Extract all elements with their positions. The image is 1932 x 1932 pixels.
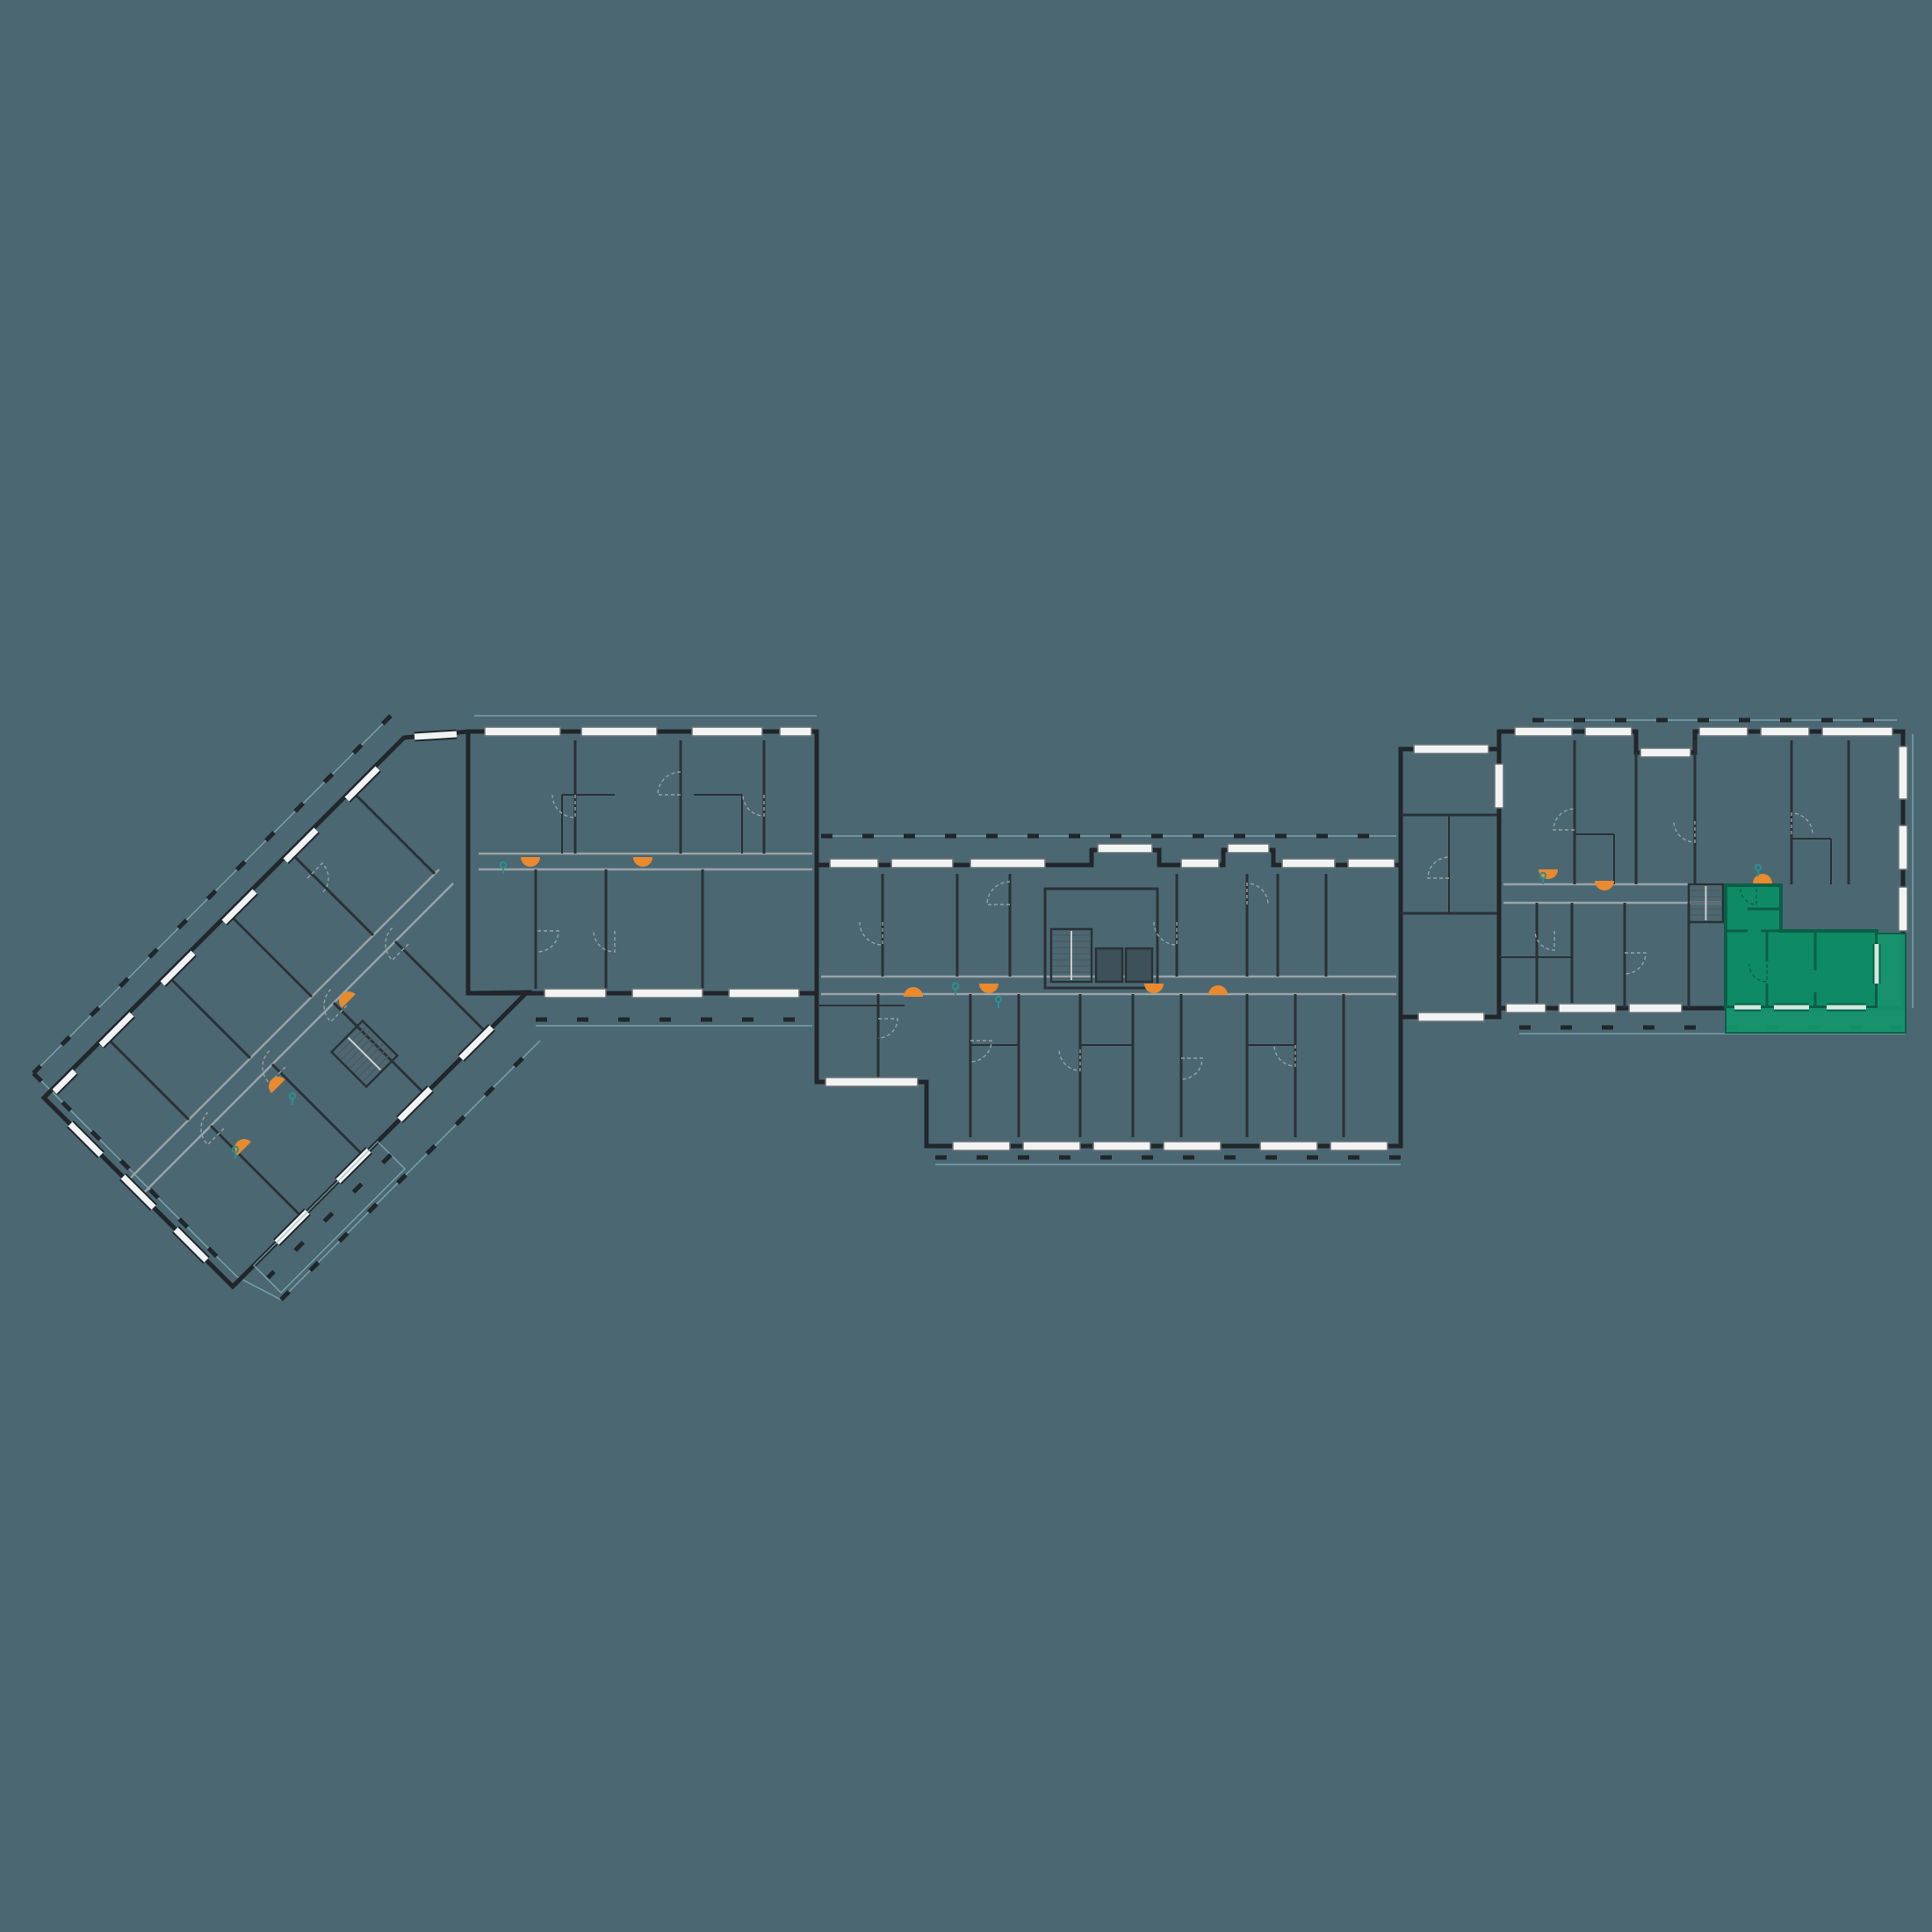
- door-arc: [1059, 1049, 1080, 1071]
- elevator-shaft: [1096, 948, 1122, 982]
- floorplan-page: [0, 0, 1932, 1932]
- door-arc: [1791, 813, 1813, 834]
- door-arc: [1274, 1045, 1295, 1066]
- entrance-door-icon: [904, 987, 923, 997]
- staircase-icon: [332, 1021, 398, 1087]
- door-arc: [1625, 953, 1646, 974]
- entrance-door-icon: [1595, 881, 1614, 890]
- door-arc: [987, 882, 1010, 905]
- door-arc: [537, 931, 559, 952]
- entrance-door-icon: [979, 984, 998, 993]
- door-arc: [1554, 809, 1575, 830]
- door-arc: [878, 1019, 898, 1038]
- entrance-door-icon: [521, 857, 540, 867]
- selected-unit-highlight[interactable]: [1726, 885, 1906, 1033]
- door-arcs: [191, 772, 1813, 1144]
- entrance-door-icon: [633, 857, 652, 867]
- wing-block: [44, 732, 527, 1293]
- door-arc: [594, 931, 615, 952]
- block-c: [817, 844, 1401, 1150]
- entrance-door-icon: [1144, 984, 1164, 993]
- floorplan-svg: [0, 0, 1932, 1932]
- door-arc: [1674, 821, 1695, 842]
- door-arc: [860, 922, 883, 945]
- door-arc: [658, 772, 681, 795]
- entrance-door-icon: [1208, 985, 1228, 995]
- door-arc: [970, 1041, 991, 1062]
- door-arc: [552, 795, 575, 818]
- staircase-icon: [1689, 884, 1723, 922]
- entrance-door-icon: [1753, 874, 1772, 883]
- door-arc: [1428, 857, 1449, 878]
- elevator-shaft: [1126, 948, 1152, 982]
- fixture-icon: [290, 1093, 295, 1105]
- fixture-icon: [996, 997, 1001, 1008]
- door-arc: [307, 863, 337, 893]
- door-arc: [1181, 1058, 1202, 1079]
- connector-block: [1401, 745, 1499, 1021]
- door-arc: [1247, 883, 1268, 905]
- door-arc: [743, 795, 764, 816]
- staircase-icon: [1051, 929, 1092, 982]
- fixture-icon: [501, 862, 506, 874]
